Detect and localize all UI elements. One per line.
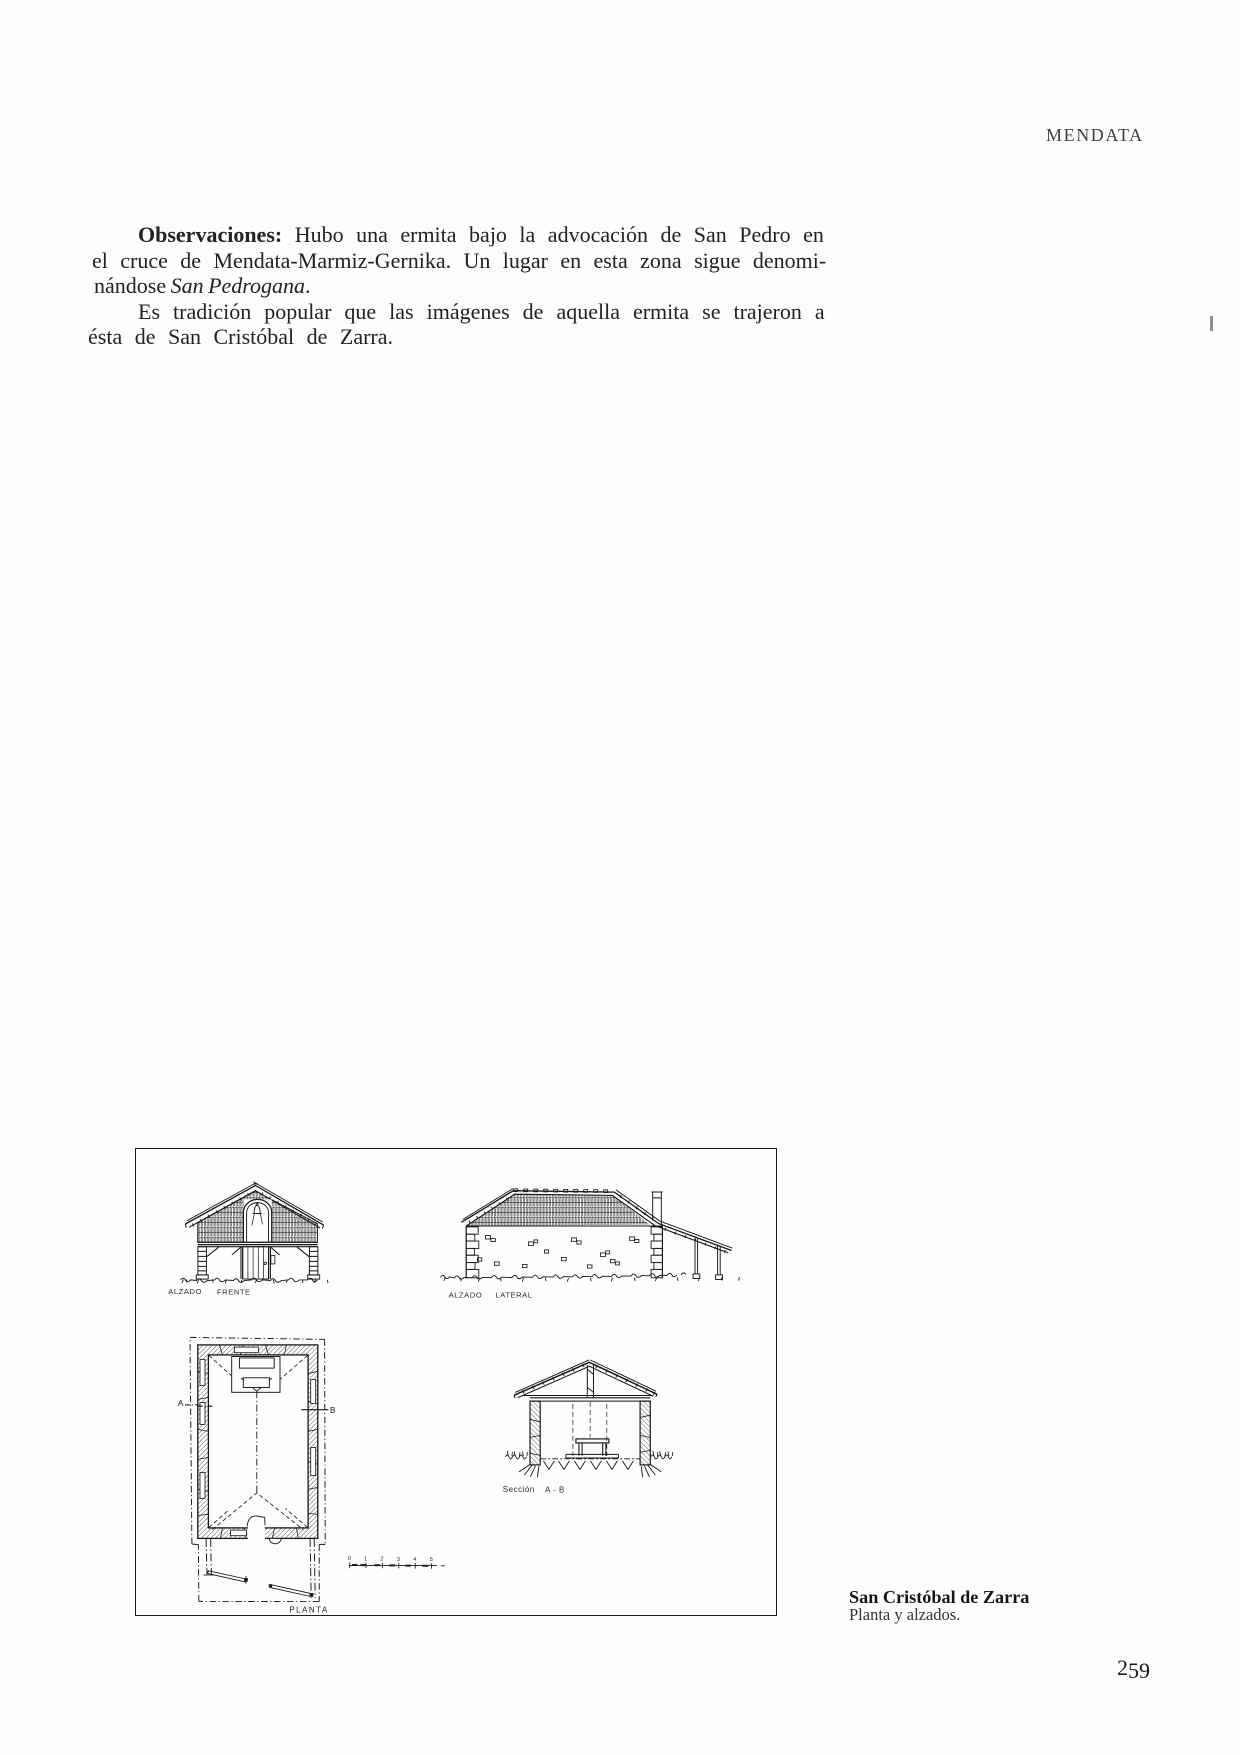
svg-text:ALZADO: ALZADO bbox=[168, 1287, 202, 1296]
svg-text:LATERAL: LATERAL bbox=[496, 1291, 533, 1300]
svg-text:FRENTE: FRENTE bbox=[217, 1288, 251, 1297]
svg-text:4: 4 bbox=[413, 1557, 417, 1563]
svg-text:B: B bbox=[330, 1405, 336, 1415]
svg-text:Sección: Sección bbox=[503, 1485, 535, 1494]
svg-text:1: 1 bbox=[364, 1556, 367, 1562]
svg-text:A: A bbox=[178, 1398, 184, 1408]
svg-text:0: 0 bbox=[348, 1556, 351, 1562]
svg-text:3: 3 bbox=[397, 1557, 400, 1563]
svg-text:A - B: A - B bbox=[545, 1486, 565, 1495]
svg-text:5: 5 bbox=[430, 1557, 433, 1563]
svg-text:ALZADO: ALZADO bbox=[449, 1290, 483, 1299]
svg-text:2: 2 bbox=[380, 1557, 383, 1563]
svg-text:PLANTA: PLANTA bbox=[289, 1605, 328, 1614]
